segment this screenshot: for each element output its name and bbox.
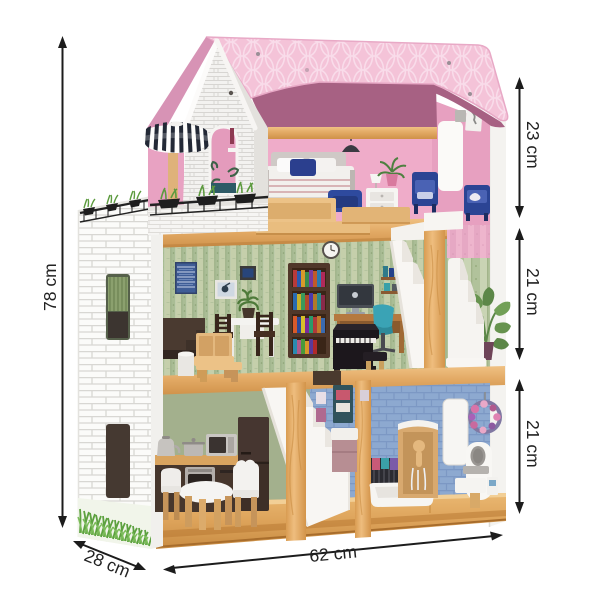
svg-text:21 cm: 21 cm <box>523 268 543 316</box>
svg-text:23 cm: 23 cm <box>523 121 543 169</box>
svg-text:21 cm: 21 cm <box>523 420 543 468</box>
svg-text:78 cm: 78 cm <box>40 263 60 311</box>
